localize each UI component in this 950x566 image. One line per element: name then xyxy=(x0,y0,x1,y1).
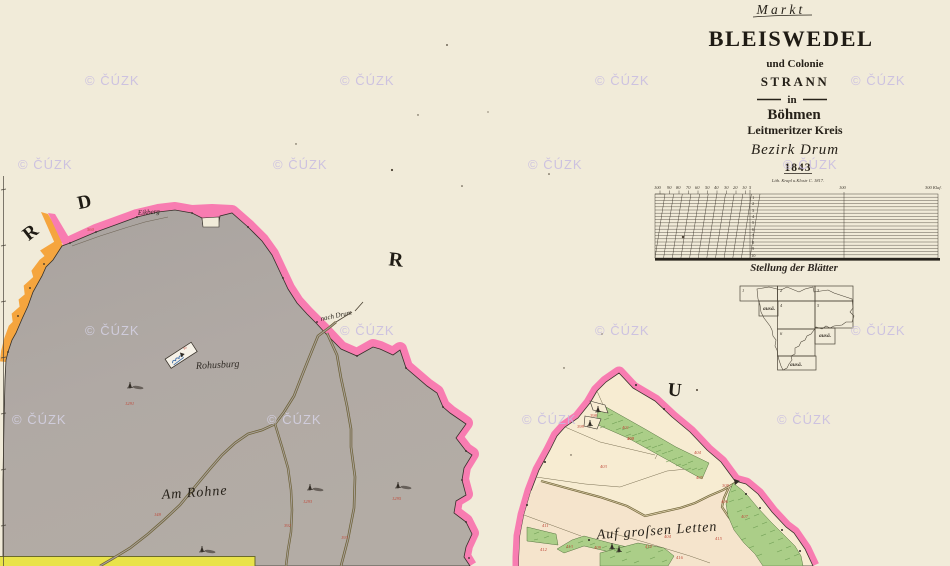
svg-text:© ČÚZK: © ČÚZK xyxy=(777,412,832,427)
svg-text:1: 1 xyxy=(742,288,744,293)
svg-text:Leitmeritzer Kreis: Leitmeritzer Kreis xyxy=(747,123,843,137)
svg-text:100: 100 xyxy=(839,185,847,190)
svg-text:411: 411 xyxy=(542,523,549,528)
svg-text:ausä.: ausä. xyxy=(790,362,802,368)
svg-text:1: 1 xyxy=(752,195,754,200)
svg-text:© ČÚZK: © ČÚZK xyxy=(783,157,838,172)
svg-text:392: 392 xyxy=(284,523,292,528)
svg-text:© ČÚZK: © ČÚZK xyxy=(267,412,322,427)
svg-text:© ČÚZK: © ČÚZK xyxy=(85,323,140,338)
svg-text:90: 90 xyxy=(667,185,672,190)
svg-text:Lith. Krapl u.Klostr C. 1817.: Lith. Krapl u.Klostr C. 1817. xyxy=(771,178,824,183)
svg-text:© ČÚZK: © ČÚZK xyxy=(528,157,583,172)
svg-text:404: 404 xyxy=(664,534,672,539)
svg-text:399: 399 xyxy=(577,424,585,429)
svg-text:412: 412 xyxy=(540,547,548,552)
svg-text:100: 100 xyxy=(654,185,662,190)
svg-text:© ČÚZK: © ČÚZK xyxy=(340,323,395,338)
svg-text:30: 30 xyxy=(724,185,729,190)
svg-text:560: 560 xyxy=(87,227,95,232)
svg-text:© ČÚZK: © ČÚZK xyxy=(85,73,140,88)
svg-text:R: R xyxy=(388,248,405,271)
svg-text:403: 403 xyxy=(600,464,608,469)
svg-text:1295: 1295 xyxy=(392,496,402,501)
svg-text:© ČÚZK: © ČÚZK xyxy=(851,73,906,88)
svg-text:40: 40 xyxy=(714,185,719,190)
svg-text:STRANN: STRANN xyxy=(761,74,829,89)
svg-text:404: 404 xyxy=(694,450,702,455)
svg-text:© ČÚZK: © ČÚZK xyxy=(595,323,650,338)
svg-text:405: 405 xyxy=(696,475,704,480)
svg-text:401: 401 xyxy=(622,425,629,430)
svg-text:in: in xyxy=(787,94,796,106)
svg-text:10: 10 xyxy=(742,185,747,190)
svg-text:410: 410 xyxy=(645,544,653,549)
svg-text:409: 409 xyxy=(594,545,602,550)
svg-text:1291: 1291 xyxy=(125,401,134,406)
svg-text:415: 415 xyxy=(715,536,723,541)
svg-text:© ČÚZK: © ČÚZK xyxy=(595,73,650,88)
svg-text:50: 50 xyxy=(705,185,710,190)
svg-text:2: 2 xyxy=(752,201,754,206)
svg-text:416: 416 xyxy=(676,555,684,560)
svg-text:60: 60 xyxy=(695,185,700,190)
svg-text:ausä.: ausä. xyxy=(819,333,831,339)
svg-text:Stellung der Blätter: Stellung der Blätter xyxy=(750,262,838,274)
svg-text:70: 70 xyxy=(686,185,691,190)
svg-text:413: 413 xyxy=(566,544,574,549)
svg-text:398: 398 xyxy=(590,413,598,418)
svg-text:10: 10 xyxy=(751,253,756,258)
svg-text:Eikberg: Eikberg xyxy=(137,207,161,217)
svg-text:ausä.: ausä. xyxy=(763,306,775,312)
svg-text:U: U xyxy=(667,379,683,401)
svg-text:© ČÚZK: © ČÚZK xyxy=(18,157,73,172)
svg-text:Rohusburg: Rohusburg xyxy=(195,359,240,372)
svg-text:© ČÚZK: © ČÚZK xyxy=(273,157,328,172)
svg-text:20: 20 xyxy=(733,185,738,190)
svg-text:© ČÚZK: © ČÚZK xyxy=(851,323,906,338)
svg-text:© ČÚZK: © ČÚZK xyxy=(12,412,67,427)
svg-text:400: 400 xyxy=(626,436,635,441)
svg-text:1293: 1293 xyxy=(303,499,313,504)
svg-text:Markt: Markt xyxy=(756,2,806,17)
svg-text:406: 406 xyxy=(721,499,729,504)
svg-text:193: 193 xyxy=(341,535,349,540)
svg-text:Bezirk Drum: Bezirk Drum xyxy=(751,142,839,158)
svg-text:© ČÚZK: © ČÚZK xyxy=(340,73,395,88)
svg-text:Böhmen: Böhmen xyxy=(767,107,821,123)
svg-text:148: 148 xyxy=(154,512,162,517)
svg-text:80: 80 xyxy=(676,185,681,190)
svg-text:300 Klaf.: 300 Klaf. xyxy=(925,185,942,190)
svg-text:309: 309 xyxy=(722,483,730,488)
svg-text:407: 407 xyxy=(741,514,749,519)
svg-text:BLEISWEDEL: BLEISWEDEL xyxy=(708,26,873,51)
svg-text:und Colonie: und Colonie xyxy=(766,58,823,70)
svg-text:© ČÚZK: © ČÚZK xyxy=(522,412,577,427)
